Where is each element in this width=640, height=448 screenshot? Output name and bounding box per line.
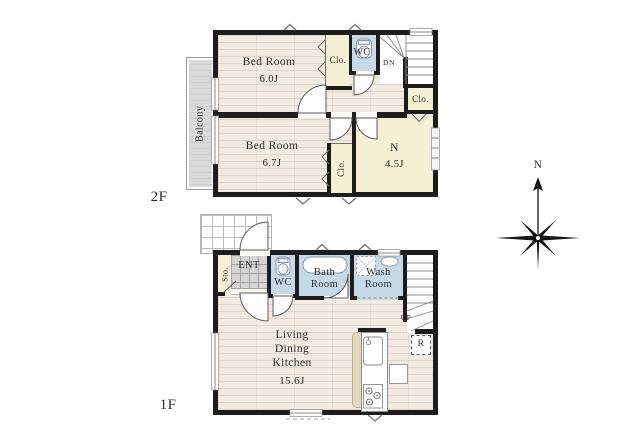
wall-segment — [350, 296, 357, 300]
wc-label-2f: WC — [348, 48, 376, 58]
closet-bottom-label: Clo. — [337, 160, 346, 177]
ldk-label-1: Living — [247, 330, 337, 342]
ldk-label-2: Dining — [247, 344, 337, 356]
bedroom1-name: Bed Room — [213, 57, 325, 69]
n-room-size: 4.5J — [356, 160, 433, 171]
entrance-step — [231, 288, 267, 295]
bath-room-label-1: Bath — [299, 268, 350, 279]
storage-label: Sto. — [218, 255, 231, 293]
wall-segment — [376, 35, 380, 75]
bath-room-label-2: Room — [299, 280, 350, 291]
door-gap — [298, 112, 326, 118]
door-gap — [356, 71, 374, 75]
stairs-up-label: UP — [394, 314, 418, 322]
floor2-label: 2F — [138, 190, 180, 205]
wall-segment — [403, 255, 407, 322]
closet-top: Clo. — [325, 35, 350, 86]
kitchen-counter — [361, 332, 388, 412]
wall-segment — [299, 296, 324, 300]
bedroom1-size: 6.0J — [213, 75, 325, 86]
wash-room-label-2: Room — [354, 280, 403, 291]
floor1-label: 1F — [147, 398, 189, 413]
entrance-porch-tiles — [200, 214, 272, 254]
refrigerator-space: R — [411, 335, 431, 355]
floorplan-canvas: Balcony Clo. Clo. Clo. 2F Bed Room 6.0J … — [0, 0, 640, 448]
wall-segment — [415, 329, 433, 334]
ldk-size: 15.6J — [247, 376, 337, 387]
door-gap — [331, 112, 352, 118]
refrigerator-label: R — [418, 340, 425, 350]
wc-room-1f — [271, 255, 295, 296]
wall-segment — [218, 292, 225, 296]
wall-segment — [358, 328, 386, 332]
closet-right: Clo. — [408, 88, 433, 110]
bedroom2-name: Bed Room — [216, 141, 328, 153]
balcony: Balcony — [186, 57, 215, 190]
wall-segment — [404, 110, 433, 114]
wall-segment — [267, 255, 271, 295]
door-gap — [324, 296, 350, 300]
door-gap — [356, 112, 377, 118]
n-room — [356, 118, 433, 192]
entrance-label: ENT — [231, 261, 267, 272]
door-gap — [273, 294, 293, 298]
bedroom2-size: 6.7J — [216, 159, 328, 170]
n-room-name: N — [356, 143, 433, 155]
wall-segment — [218, 112, 298, 118]
wc-label-1f: WC — [267, 278, 299, 289]
door-gap — [240, 249, 270, 256]
closet-bottom: Clo. — [331, 143, 352, 193]
wall-segment — [377, 112, 407, 118]
storage-room: Sto. — [218, 255, 232, 293]
ldk-label-3: Kitchen — [247, 358, 337, 370]
balcony-label: Balcony — [187, 58, 214, 189]
stairs-dn-label: DN — [378, 59, 400, 67]
wash-room-label-1: Wash — [354, 268, 403, 279]
wall-segment — [325, 86, 352, 90]
kitchen-island — [389, 364, 408, 384]
compass-north-label: N — [493, 160, 583, 172]
compass-rose: N — [493, 160, 583, 272]
compass-star — [493, 160, 583, 272]
closet-right-label: Clo. — [412, 95, 429, 104]
closet-top-label: Clo. — [330, 56, 347, 65]
wall-segment — [404, 88, 408, 110]
